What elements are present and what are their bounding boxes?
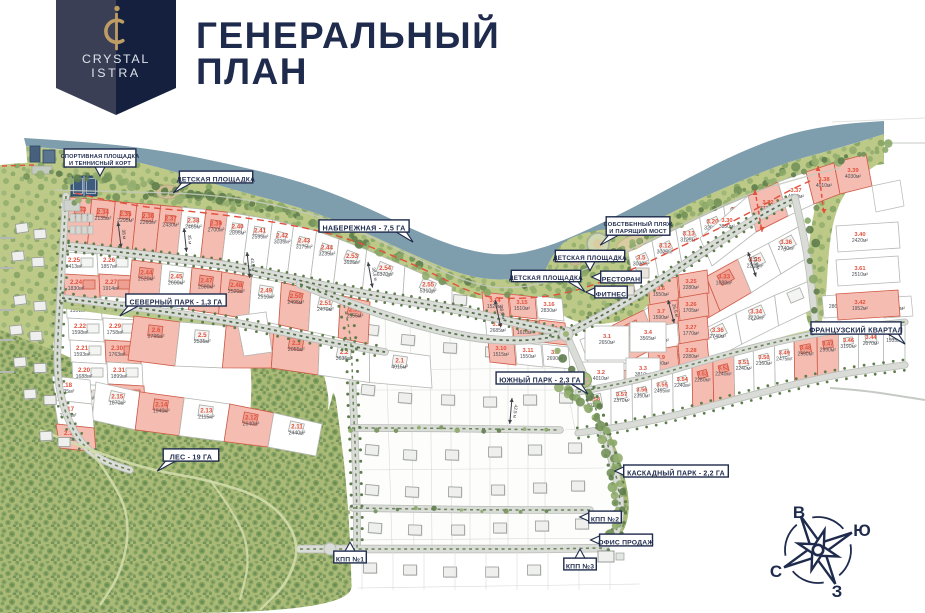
svg-text:ЛЕС - 19 ГА: ЛЕС - 19 ГА xyxy=(170,453,212,462)
svg-text:2520м²: 2520м² xyxy=(138,277,155,283)
svg-text:1763м²: 1763м² xyxy=(109,352,126,358)
svg-text:1758м²: 1758м² xyxy=(107,330,124,336)
svg-text:2555м²: 2555м² xyxy=(346,313,363,319)
svg-text:2.47: 2.47 xyxy=(200,277,213,284)
svg-text:РЕСТОРАН: РЕСТОРАН xyxy=(602,276,640,283)
svg-text:2455м²: 2455м² xyxy=(654,389,671,395)
svg-text:1940м²: 1940м² xyxy=(153,408,170,414)
svg-text:6370м²: 6370м² xyxy=(377,272,394,278)
svg-text:2475м²: 2475м² xyxy=(776,356,793,362)
svg-text:2430м²: 2430м² xyxy=(162,222,179,228)
svg-text:2.14: 2.14 xyxy=(155,401,168,408)
svg-text:2535м²: 2535м² xyxy=(194,339,211,345)
svg-text:3565м²: 3565м² xyxy=(640,336,657,342)
svg-text:2.12: 2.12 xyxy=(245,415,258,422)
svg-text:2580м²: 2580м² xyxy=(198,284,215,290)
svg-text:СОБСТВЕННЫЙ ПЛЯЖ: СОБСТВЕННЫЙ ПЛЯЖ xyxy=(604,220,674,228)
svg-text:2.1: 2.1 xyxy=(395,357,404,364)
svg-text:1510м²: 1510м² xyxy=(514,306,531,312)
svg-text:2990м²: 2990м² xyxy=(820,347,837,353)
svg-text:ФРАНЦУЗСКИЙ КВАРТАЛ: ФРАНЦУЗСКИЙ КВАРТАЛ xyxy=(809,326,903,335)
svg-text:2465м²: 2465м² xyxy=(185,225,202,231)
svg-text:2.45: 2.45 xyxy=(170,273,183,280)
svg-text:1550м²: 1550м² xyxy=(653,292,670,298)
svg-text:2.31: 2.31 xyxy=(113,367,126,374)
svg-text:3.36: 3.36 xyxy=(780,239,793,246)
svg-text:2.41: 2.41 xyxy=(254,227,267,234)
svg-text:2.51: 2.51 xyxy=(319,300,332,307)
svg-text:2.27: 2.27 xyxy=(105,279,118,286)
svg-text:3035м²: 3035м² xyxy=(274,239,291,245)
svg-text:1688м²: 1688м² xyxy=(716,280,733,286)
svg-text:ЮЖНЫЙ ПАРК - 2,3 ГА: ЮЖНЫЙ ПАРК - 2,3 ГА xyxy=(499,375,581,384)
svg-text:2.29: 2.29 xyxy=(109,323,122,330)
svg-text:КПП №3: КПП №3 xyxy=(566,563,594,570)
svg-text:2600м²: 2600м² xyxy=(168,280,185,286)
svg-text:2495м²: 2495м² xyxy=(287,300,304,306)
svg-text:С: С xyxy=(770,562,782,581)
svg-text:2260м²: 2260м² xyxy=(140,220,157,226)
svg-text:2.34: 2.34 xyxy=(97,209,110,216)
svg-text:1899м²: 1899м² xyxy=(111,374,128,380)
svg-text:2240м²: 2240м² xyxy=(715,372,732,378)
svg-text:2135м²: 2135м² xyxy=(94,216,111,222)
svg-text:2.40: 2.40 xyxy=(232,223,245,230)
svg-text:2795м²: 2795м² xyxy=(148,334,165,340)
svg-text:2.26: 2.26 xyxy=(103,257,116,264)
svg-text:1590м²: 1590м² xyxy=(653,315,670,321)
svg-text:В: В xyxy=(793,503,805,522)
svg-text:2830м²: 2830м² xyxy=(541,308,558,314)
svg-text:3.5: 3.5 xyxy=(637,255,646,262)
svg-text:2.54: 2.54 xyxy=(379,265,392,272)
svg-text:3220м²: 3220м² xyxy=(748,316,765,322)
svg-text:1593м²: 1593м² xyxy=(74,352,91,358)
svg-text:2.30: 2.30 xyxy=(111,345,124,352)
svg-text:2685м²: 2685м² xyxy=(490,328,507,334)
svg-text:2.53: 2.53 xyxy=(346,253,359,260)
svg-text:1515м²: 1515м² xyxy=(493,352,510,358)
svg-text:1870м²: 1870м² xyxy=(109,400,126,406)
svg-text:1705м²: 1705м² xyxy=(683,308,700,314)
svg-text:КПП №1: КПП №1 xyxy=(336,556,364,563)
svg-text:2070м²: 2070м² xyxy=(863,341,880,347)
svg-text:CRYSTAL: CRYSTAL xyxy=(82,52,150,66)
svg-text:4015м²: 4015м² xyxy=(391,364,408,370)
svg-text:2510м²: 2510м² xyxy=(258,294,275,300)
svg-text:КПП №2: КПП №2 xyxy=(591,516,619,523)
svg-text:1952м²: 1952м² xyxy=(852,306,869,312)
svg-text:3.12: 3.12 xyxy=(659,243,672,250)
svg-text:2.43: 2.43 xyxy=(298,238,311,245)
svg-text:4010м²: 4010м² xyxy=(816,183,833,189)
svg-text:1550м²: 1550м² xyxy=(520,354,537,360)
svg-text:2055м²: 2055м² xyxy=(288,347,305,353)
svg-text:2.50: 2.50 xyxy=(290,293,303,300)
svg-text:2370м²: 2370м² xyxy=(613,398,630,404)
svg-text:4010м²: 4010м² xyxy=(593,376,610,382)
svg-text:1914м²: 1914м² xyxy=(103,286,120,292)
svg-text:2115м²: 2115м² xyxy=(198,414,215,420)
svg-text:35 м: 35 м xyxy=(187,234,193,244)
svg-text:ОФИС ПРОДАЖ: ОФИС ПРОДАЖ xyxy=(598,539,654,546)
svg-text:2.20: 2.20 xyxy=(78,367,91,374)
svg-text:СПОРТИВНАЯ ПЛОЩАДКА: СПОРТИВНАЯ ПЛОЩАДКА xyxy=(61,154,140,160)
svg-text:2.22: 2.22 xyxy=(74,323,87,330)
svg-text:2.13: 2.13 xyxy=(200,407,213,414)
svg-text:2.6: 2.6 xyxy=(152,327,161,334)
svg-text:3.36: 3.36 xyxy=(712,327,725,334)
svg-text:2520м²: 2520м² xyxy=(228,289,245,295)
svg-text:И ТЕННИСНЫЙ КОРТ: И ТЕННИСНЫЙ КОРТ xyxy=(69,159,131,167)
svg-text:2470м²: 2470м² xyxy=(317,307,334,313)
svg-text:2280м²: 2280м² xyxy=(694,377,711,383)
svg-text:2640м²: 2640м² xyxy=(243,422,260,428)
svg-text:2280м²: 2280м² xyxy=(683,285,700,291)
svg-text:2740м²: 2740м² xyxy=(778,246,795,252)
svg-text:2.44: 2.44 xyxy=(140,270,153,277)
svg-text:ДЕТСКАЯ ПЛОЩАДКА: ДЕТСКАЯ ПЛОЩАДКА xyxy=(553,255,627,262)
svg-text:3.34: 3.34 xyxy=(750,309,763,316)
svg-text:2.55: 2.55 xyxy=(422,281,435,288)
svg-text:2.44: 2.44 xyxy=(321,245,334,252)
svg-text:И ПАРЯЩИЙ МОСТ: И ПАРЯЩИЙ МОСТ xyxy=(609,227,667,235)
svg-text:2.21: 2.21 xyxy=(76,345,89,352)
svg-text:1830м²: 1830м² xyxy=(68,286,85,292)
svg-text:Ю: Ю xyxy=(853,521,871,540)
svg-text:3.33: 3.33 xyxy=(718,273,731,280)
svg-text:3235м²: 3235м² xyxy=(318,252,335,258)
svg-text:2.24: 2.24 xyxy=(70,279,83,286)
svg-text:2.11: 2.11 xyxy=(291,424,303,431)
svg-text:2440м²: 2440м² xyxy=(289,431,306,437)
svg-text:2740м²: 2740м² xyxy=(709,334,726,340)
svg-text:2.5: 2.5 xyxy=(198,332,207,339)
svg-text:2.42: 2.42 xyxy=(276,232,289,239)
svg-text:1857м²: 1857м² xyxy=(101,264,118,270)
svg-text:2295м²: 2295м² xyxy=(117,218,134,224)
svg-text:2.49: 2.49 xyxy=(260,287,273,294)
svg-text:2990м²: 2990м² xyxy=(797,352,814,358)
svg-text:3190м²: 3190м² xyxy=(840,344,857,350)
svg-text:ДЕТСКАЯ ПЛОЩАДКА: ДЕТСКАЯ ПЛОЩАДКА xyxy=(177,176,255,183)
svg-text:НАБЕРЕЖНАЯ - 7,5 ГА: НАБЕРЕЖНАЯ - 7,5 ГА xyxy=(323,224,406,233)
svg-text:2.37: 2.37 xyxy=(165,215,178,222)
svg-text:2.39: 2.39 xyxy=(210,220,223,227)
svg-text:2510м²: 2510м² xyxy=(852,272,869,278)
svg-text:3175м²: 3175м² xyxy=(296,245,313,251)
svg-text:1413м²: 1413м² xyxy=(66,264,83,270)
svg-text:2650м²: 2650м² xyxy=(599,340,616,346)
svg-text:2350м²: 2350м² xyxy=(634,394,651,400)
svg-text:2.35: 2.35 xyxy=(119,211,132,218)
svg-text:2240м²: 2240м² xyxy=(674,383,691,389)
svg-text:2.36: 2.36 xyxy=(142,213,155,220)
svg-text:2240м²: 2240м² xyxy=(736,366,753,372)
svg-text:2160м²: 2160м² xyxy=(756,361,773,367)
svg-text:2595м²: 2595м² xyxy=(252,234,269,240)
svg-text:3635м²: 3635м² xyxy=(336,356,353,362)
svg-text:2.38: 2.38 xyxy=(187,218,200,225)
svg-text:КАСКАДНЫЙ ПАРК - 2,2 ГА: КАСКАДНЫЙ ПАРК - 2,2 ГА xyxy=(627,468,725,477)
svg-text:З: З xyxy=(832,582,843,601)
svg-text:2280м²: 2280м² xyxy=(683,354,700,360)
svg-text:4030м²: 4030м² xyxy=(845,174,862,180)
svg-text:2.15: 2.15 xyxy=(111,393,124,400)
svg-text:1770м²: 1770м² xyxy=(683,331,700,337)
svg-text:2700м²: 2700м² xyxy=(208,227,225,233)
svg-text:ISTRA: ISTRA xyxy=(91,66,141,80)
svg-text:2895м²: 2895м² xyxy=(229,230,246,236)
svg-text:СЕВЕРНЫЙ ПАРК - 1,3 ГА: СЕВЕРНЫЙ ПАРК - 1,3 ГА xyxy=(130,297,223,306)
svg-text:5310м²: 5310м² xyxy=(420,288,437,294)
svg-text:2420м²: 2420м² xyxy=(852,238,869,244)
svg-text:2.25: 2.25 xyxy=(68,257,81,264)
svg-text:3.13: 3.13 xyxy=(683,231,696,238)
svg-text:1598м²: 1598м² xyxy=(72,330,89,336)
svg-text:ФИТНЕС: ФИТНЕС xyxy=(596,291,626,298)
svg-text:3625м²: 3625м² xyxy=(344,260,361,266)
svg-text:ДЕТСКАЯ ПЛОЩАДКА: ДЕТСКАЯ ПЛОЩАДКА xyxy=(509,275,583,282)
svg-text:2.48: 2.48 xyxy=(230,282,243,289)
